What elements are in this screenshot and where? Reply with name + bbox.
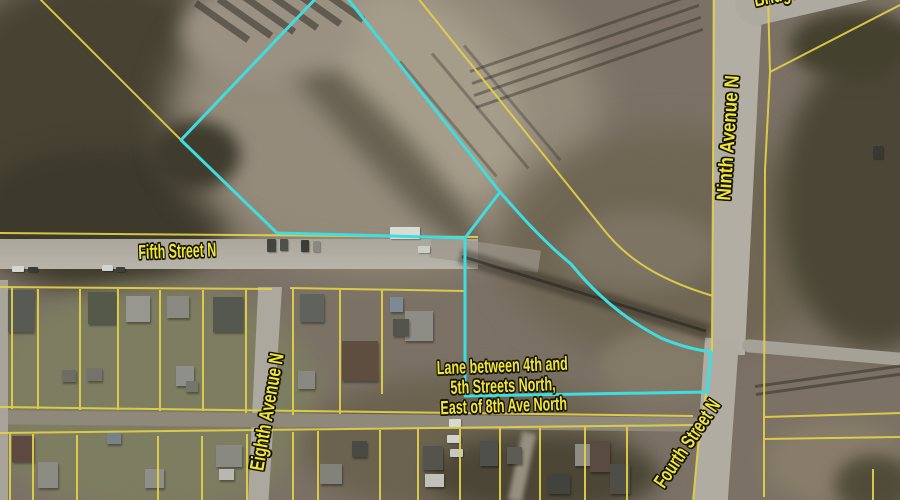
- parcel-boundary-lines: [0, 0, 900, 500]
- parcel-line: [38, 0, 181, 140]
- parcel-line: [764, 0, 770, 420]
- parcel-line: [764, 413, 900, 500]
- aerial-parcel-map[interactable]: Fifth Street N Ninth Avenue N Eighth Ave…: [0, 0, 900, 500]
- parcel-line: [0, 287, 465, 291]
- parcel-line: [10, 427, 627, 500]
- parcel-line: [0, 407, 695, 433]
- parcel-annotation: Lane between 4th and 5th Streets North, …: [436, 355, 569, 420]
- parcel-lines-group: [0, 0, 900, 500]
- highlighted-parcel-group: [181, 0, 711, 396]
- parcel-line: [12, 288, 382, 415]
- parcel-line: [417, 0, 713, 296]
- highlighted-parcel-outline-north[interactable]: [181, 0, 500, 238]
- parcel-line: [770, 4, 900, 72]
- street-label-fifth-street-n: Fifth Street N: [138, 239, 217, 265]
